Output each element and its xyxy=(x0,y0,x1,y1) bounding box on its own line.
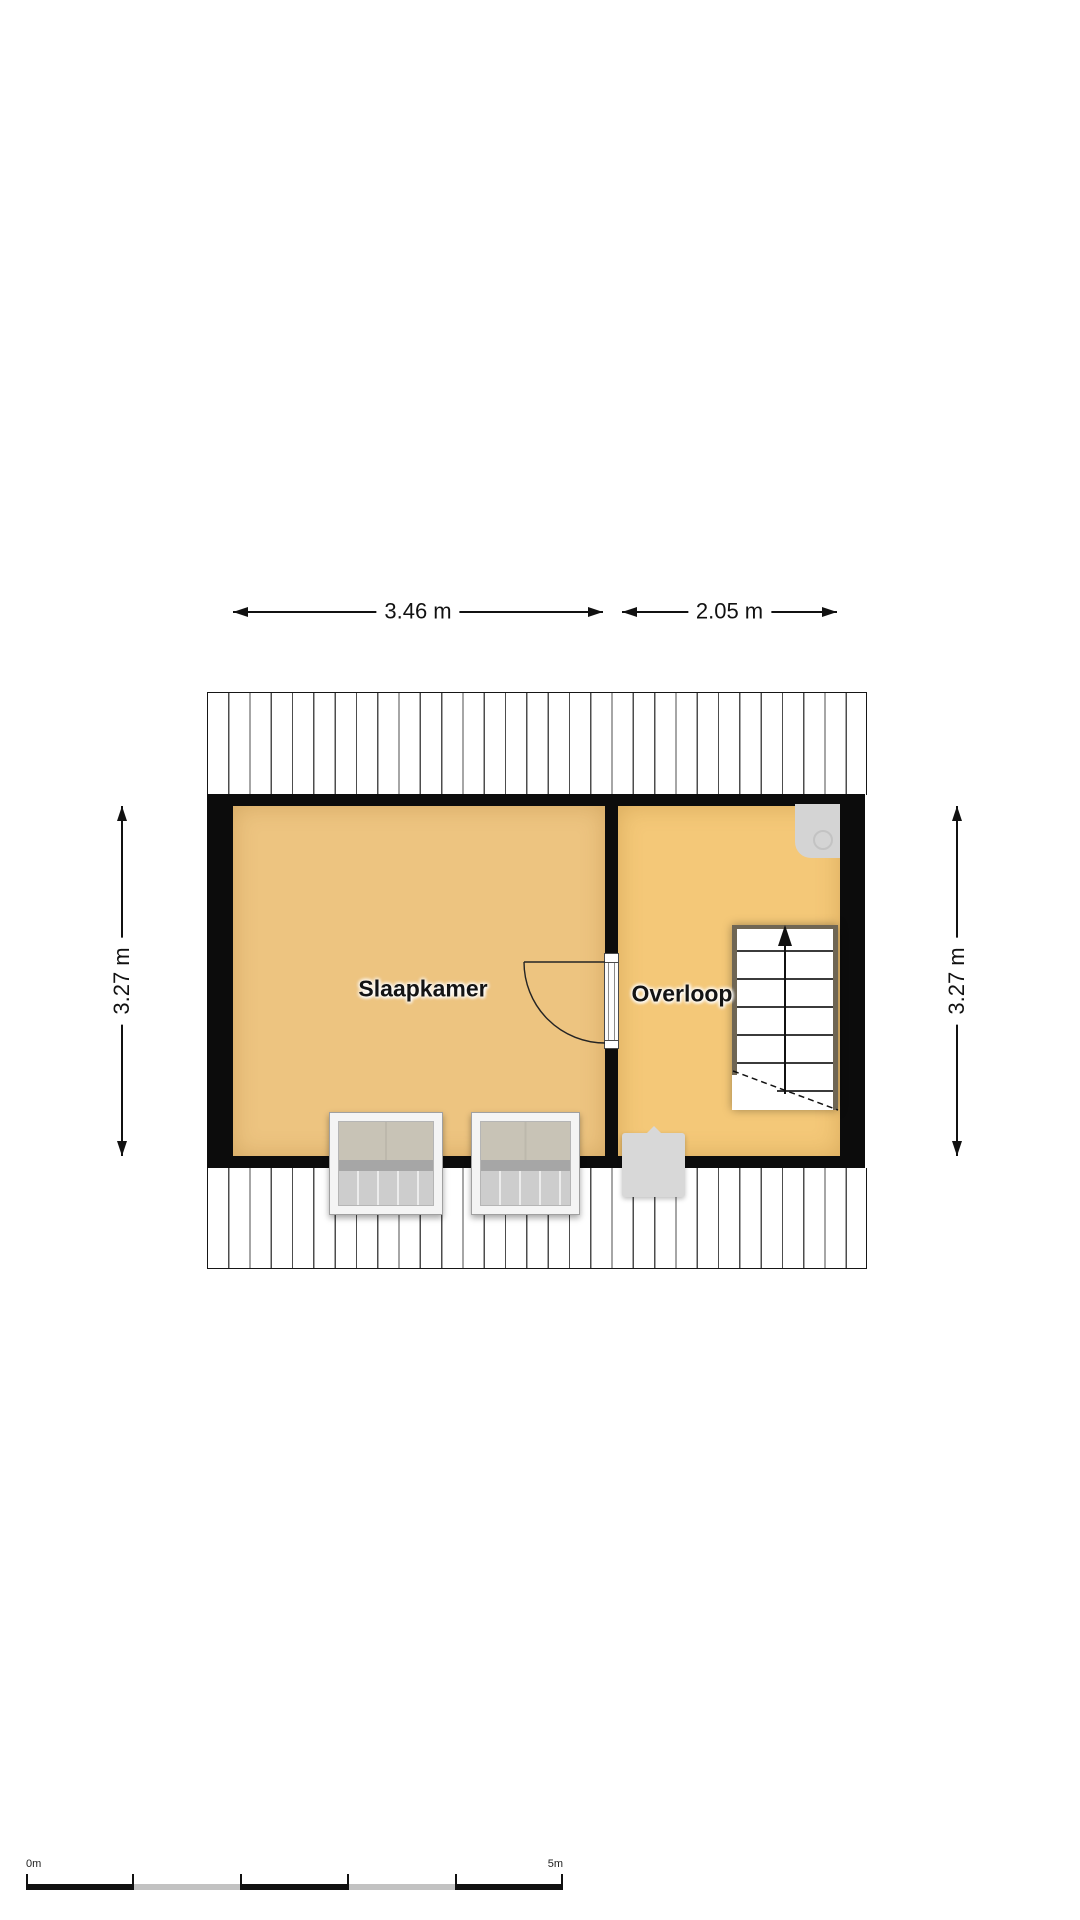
stair-tread xyxy=(737,950,833,952)
scale-segment xyxy=(26,1884,133,1890)
wall-top xyxy=(207,794,865,806)
roof-hatch-top xyxy=(207,692,867,795)
scale-segment xyxy=(348,1884,455,1890)
window-sash-band xyxy=(481,1160,570,1171)
window-pane-top xyxy=(339,1122,433,1160)
room-label-overloop: Overloop xyxy=(632,981,733,1008)
dimension-label: 3.46 m xyxy=(376,597,459,625)
arrow-left-icon xyxy=(233,607,248,617)
stair-stringer-right xyxy=(833,925,838,1110)
dimension-label: 2.05 m xyxy=(688,597,771,625)
scale-tick xyxy=(455,1874,457,1890)
arrow-right-icon xyxy=(822,607,837,617)
stair-stringer-left xyxy=(732,925,737,1075)
wall-divider-lower xyxy=(605,1049,618,1156)
dimension-top-right: 2.05 m xyxy=(622,602,837,622)
arrow-left-icon xyxy=(622,607,637,617)
stair-tread xyxy=(777,1090,833,1092)
wall-divider-upper xyxy=(605,794,618,953)
window-sash-band xyxy=(339,1160,433,1171)
arrow-down-icon xyxy=(117,1141,127,1156)
window-frame xyxy=(338,1121,434,1206)
dimension-top-left: 3.46 m xyxy=(233,602,603,622)
chimney-fixture xyxy=(795,804,840,858)
door-jamb-bottom xyxy=(605,1040,618,1048)
stair-tread xyxy=(737,1006,833,1008)
arrow-right-icon xyxy=(588,607,603,617)
window-frame xyxy=(480,1121,571,1206)
scale-label-start: 0m xyxy=(26,1858,41,1870)
wall-left xyxy=(207,794,233,1168)
scale-tick xyxy=(26,1874,28,1890)
scale-tick xyxy=(132,1874,134,1890)
fixture-block xyxy=(622,1133,685,1197)
room-label-slaapkamer: Slaapkamer xyxy=(358,976,487,1003)
window-pane-top xyxy=(481,1122,570,1160)
scale-bar: 0m 5m xyxy=(26,1858,563,1892)
door-jamb-lines xyxy=(605,963,618,1042)
roof-window-1 xyxy=(329,1112,443,1215)
stair-tread xyxy=(737,1034,833,1036)
dimension-left: 3.27 m xyxy=(112,806,132,1156)
window-pane-bottom xyxy=(339,1171,433,1205)
arrow-up-icon xyxy=(117,806,127,821)
scale-segment xyxy=(241,1884,348,1890)
stair-stringer-top xyxy=(732,925,838,929)
roof-window-2 xyxy=(471,1112,580,1215)
window-pane-bottom xyxy=(481,1171,570,1205)
stair-tread xyxy=(737,978,833,980)
scale-tick xyxy=(240,1874,242,1890)
stair-tread xyxy=(737,1062,833,1064)
wall-right xyxy=(840,794,865,1168)
scale-label-end: 5m xyxy=(548,1858,563,1870)
scale-tick xyxy=(561,1874,563,1890)
dimension-right: 3.27 m xyxy=(947,806,967,1156)
chimney-ring-icon xyxy=(813,830,833,850)
scale-tick xyxy=(347,1874,349,1890)
door-frame xyxy=(604,953,619,1049)
arrow-down-icon xyxy=(952,1141,962,1156)
scale-bar-segments xyxy=(26,1884,563,1890)
dimension-label: 3.27 m xyxy=(943,937,971,1024)
scale-segment xyxy=(456,1884,563,1890)
floorplan-canvas: Slaapkamer Overloop 3.46 m 2.05 m 3.27 m… xyxy=(0,0,1080,1920)
stairs xyxy=(732,925,838,1110)
scale-segment xyxy=(133,1884,240,1890)
fixture-notch xyxy=(646,1126,662,1134)
door-jamb-top xyxy=(605,954,618,963)
arrow-up-icon xyxy=(952,806,962,821)
dimension-label: 3.27 m xyxy=(108,937,136,1024)
